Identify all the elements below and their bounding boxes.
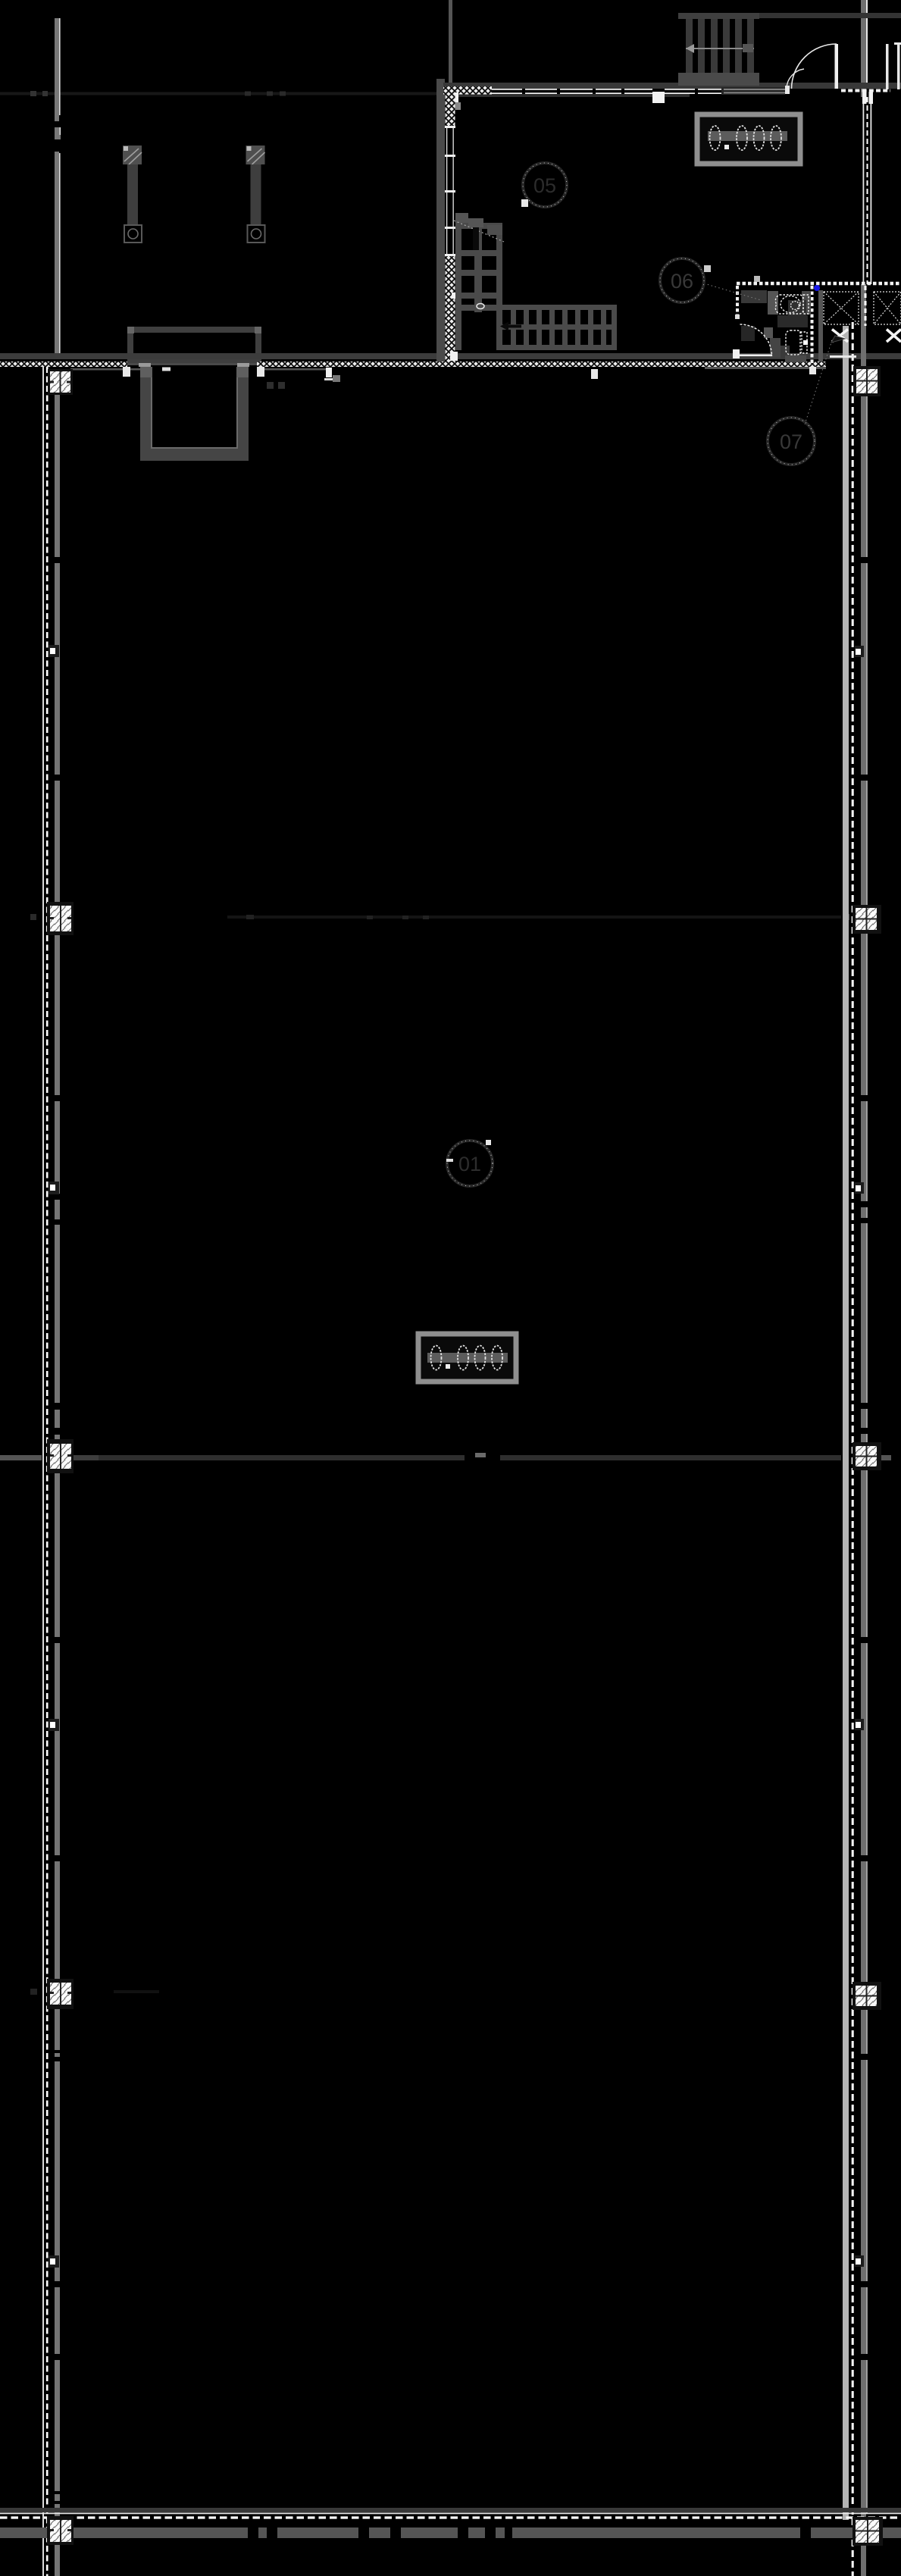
svg-text:06: 06	[671, 270, 693, 293]
svg-text:07: 07	[780, 430, 802, 453]
svg-text:01: 01	[458, 1153, 481, 1175]
svg-text:05: 05	[533, 174, 556, 197]
